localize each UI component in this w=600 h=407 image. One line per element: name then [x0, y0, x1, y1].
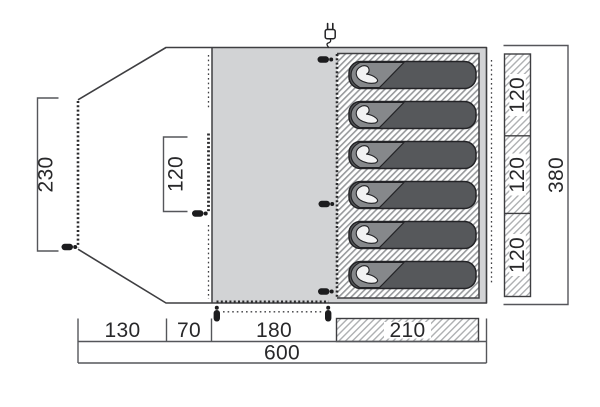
dimension-label: 130 — [105, 319, 141, 342]
zipper-pull-icon — [214, 306, 220, 322]
dimension-label: 210 — [390, 319, 426, 342]
dimension-bottom-row: 130 70 180 210 600 — [78, 319, 487, 365]
dimension-label: 120 — [506, 157, 529, 193]
sleeping-bag — [349, 142, 476, 169]
dimension-label: 120 — [506, 237, 529, 273]
zipper-pull-icon — [62, 244, 78, 250]
dimension-inner-door: 120 — [164, 137, 188, 212]
plug-icon — [325, 24, 335, 48]
dimension-label: 120 — [506, 77, 529, 113]
sleeping-bag — [349, 62, 476, 89]
dimension-berths: 120 120 120 — [505, 54, 531, 297]
sleeping-bag — [349, 182, 476, 209]
dimension-label: 120 — [165, 156, 188, 192]
sleeping-bag — [349, 262, 476, 289]
dimension-label: 230 — [35, 157, 58, 193]
dimension-porch-depth: 230 — [35, 98, 59, 251]
floorplan-canvas: 230 120 120 120 120 380 130 70 180 210 6… — [0, 0, 600, 407]
dimension-label: 380 — [545, 157, 568, 193]
dimension-label-total-width: 600 — [264, 341, 300, 364]
sleeping-bag — [349, 222, 476, 249]
tent-floorplan-diagram: 230 120 120 120 120 380 130 70 180 210 6… — [0, 0, 600, 407]
zipper-pull-icon — [325, 306, 331, 322]
zipper-pull-icon — [192, 210, 208, 216]
dimension-label: 180 — [256, 319, 292, 342]
dimension-label: 70 — [177, 319, 201, 342]
sleeping-bag — [349, 102, 476, 129]
